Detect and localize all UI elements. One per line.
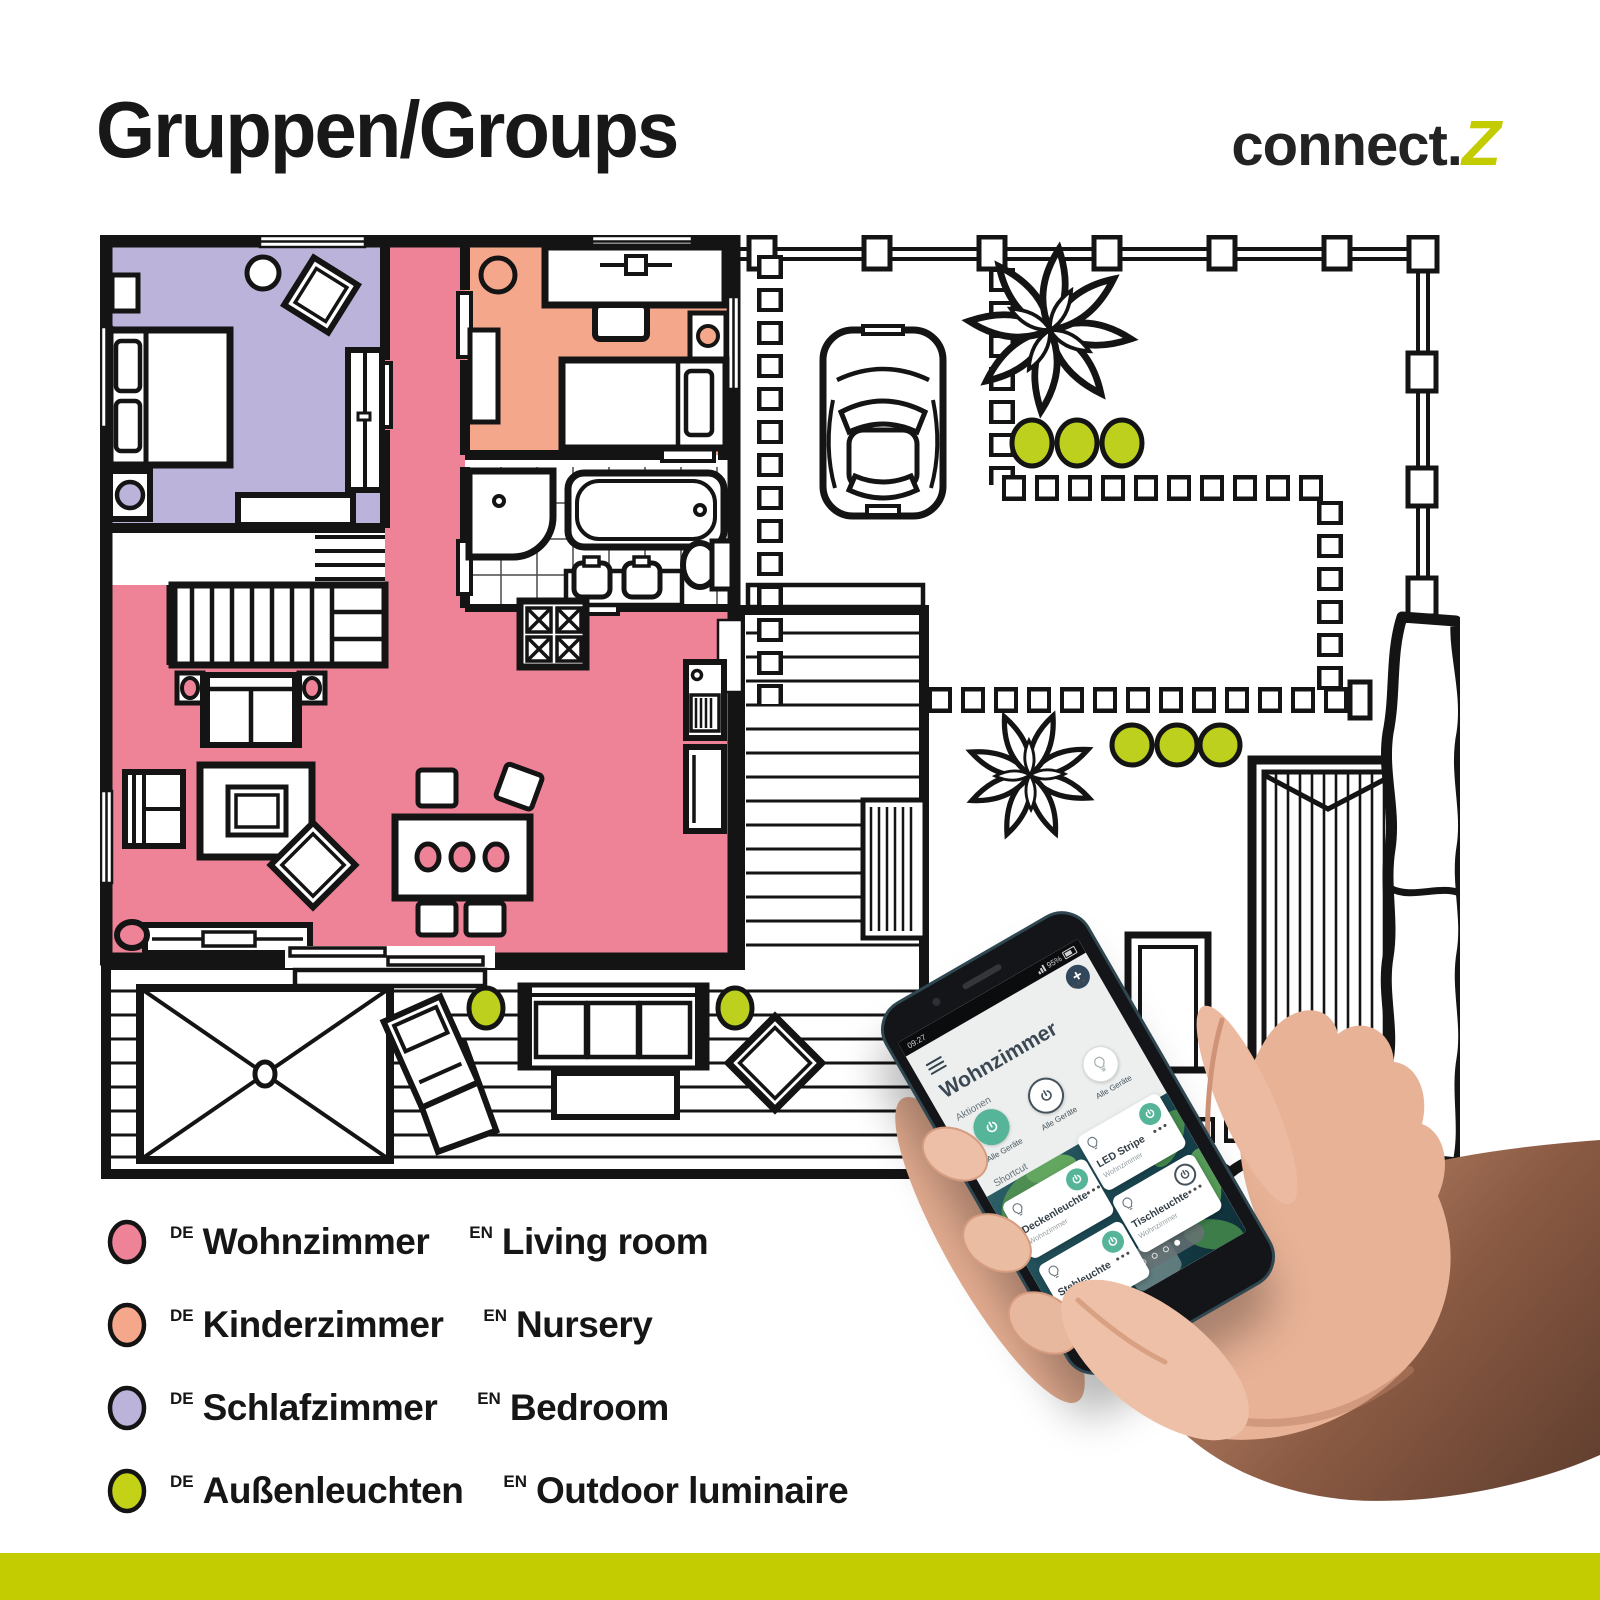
brand-logo: connect.Z xyxy=(1231,106,1500,180)
stairs-area xyxy=(172,537,385,665)
stairs xyxy=(172,585,385,665)
legend-label-en: Outdoor luminaire xyxy=(536,1470,848,1512)
lang-tag-en: EN xyxy=(503,1472,527,1492)
fridge xyxy=(686,747,724,831)
shower xyxy=(469,471,553,557)
clock: 09:27 xyxy=(906,1032,928,1050)
page-title: Gruppen/Groups xyxy=(96,84,677,176)
power-icon xyxy=(1036,1085,1056,1105)
bulb-icon xyxy=(1044,1262,1065,1284)
plant-pot xyxy=(247,257,279,289)
legend-swatch xyxy=(106,1301,148,1349)
bulb-icon xyxy=(1083,1133,1104,1155)
legend-item-bedroom: DE Schlafzimmer EN Bedroom xyxy=(106,1382,709,1434)
armchair xyxy=(125,772,183,846)
pillow xyxy=(686,371,712,435)
legend-item-living-room: DE Wohnzimmer EN Living room xyxy=(106,1216,748,1268)
garden-gate xyxy=(1252,760,1405,1095)
legend-swatch xyxy=(106,1467,148,1515)
legend-label-de: Außenleuchten xyxy=(203,1470,464,1512)
menu-icon[interactable] xyxy=(925,1056,947,1076)
legend-label-en: Bedroom xyxy=(510,1387,669,1429)
legend-label-de: Kinderzimmer xyxy=(203,1304,444,1346)
legend-label-de: Wohnzimmer xyxy=(203,1221,430,1263)
sliding-door xyxy=(285,946,495,986)
battery-icon xyxy=(1062,946,1078,960)
outdoor-light-dot xyxy=(718,988,752,1028)
bulb-icon xyxy=(1118,1194,1139,1216)
outdoor-light-dot xyxy=(1157,725,1197,765)
power-icon xyxy=(981,1117,1001,1137)
garden-flower xyxy=(951,696,1110,855)
pillow xyxy=(116,401,140,451)
lang-tag-de: DE xyxy=(170,1389,194,1409)
brand-accent-z: Z xyxy=(1462,107,1500,179)
garden-bench xyxy=(520,985,707,1068)
legend-swatch xyxy=(106,1218,148,1266)
deck-table xyxy=(554,1073,677,1117)
outdoor-light-dot xyxy=(1057,420,1097,466)
front-camera xyxy=(931,996,942,1007)
outdoor-light-dot xyxy=(1012,420,1052,466)
porch-mat xyxy=(863,800,925,938)
outdoor-light-dot xyxy=(1281,1029,1319,1067)
legend-label-de: Schlafzimmer xyxy=(203,1387,438,1429)
bedside-lamp xyxy=(117,482,143,508)
dresser xyxy=(238,495,353,525)
outdoor-light-dot xyxy=(469,988,503,1028)
battery-percent: 95% xyxy=(1045,954,1063,970)
desk-chair xyxy=(595,305,647,339)
poster: Gruppen/Groups connect.Z xyxy=(0,0,1600,1600)
legend-label-en: Nursery xyxy=(516,1304,652,1346)
lang-tag-en: EN xyxy=(469,1223,493,1243)
signal-icon xyxy=(1036,964,1046,974)
plant-pot xyxy=(481,258,515,292)
legend-item-outdoor: DE Außenleuchten EN Outdoor luminaire xyxy=(106,1465,888,1517)
bathroom-fixtures xyxy=(469,471,732,605)
bulb-icon xyxy=(1008,1199,1029,1221)
bulb-icon xyxy=(1089,1052,1112,1076)
shelf xyxy=(470,330,498,422)
lang-tag-de: DE xyxy=(170,1306,194,1326)
legend-label-en: Living room xyxy=(502,1221,708,1263)
legend-item-nursery: DE Kinderzimmer EN Nursery xyxy=(106,1299,692,1351)
floor-plan xyxy=(100,235,1460,1245)
car xyxy=(823,326,943,516)
deck-step xyxy=(295,970,485,986)
lang-tag-de: DE xyxy=(170,1223,194,1243)
room-living-sliver xyxy=(112,585,174,670)
legend-swatch xyxy=(106,1384,148,1432)
outdoor-light-dot xyxy=(1112,725,1152,765)
outdoor-light-dot xyxy=(1102,420,1142,466)
lang-tag-en: EN xyxy=(483,1306,507,1326)
outdoor-light-dot xyxy=(1200,725,1240,765)
lang-tag-en: EN xyxy=(477,1389,501,1409)
parasol xyxy=(140,988,390,1160)
sink xyxy=(624,563,660,597)
palm-shading xyxy=(1160,1370,1410,1423)
accent-footer-bar xyxy=(0,1553,1600,1600)
pillow xyxy=(116,341,140,391)
floor-lamp xyxy=(117,922,147,948)
lang-tag-de: DE xyxy=(170,1472,194,1492)
brand-text: connect. xyxy=(1231,113,1462,178)
sink xyxy=(574,563,610,597)
